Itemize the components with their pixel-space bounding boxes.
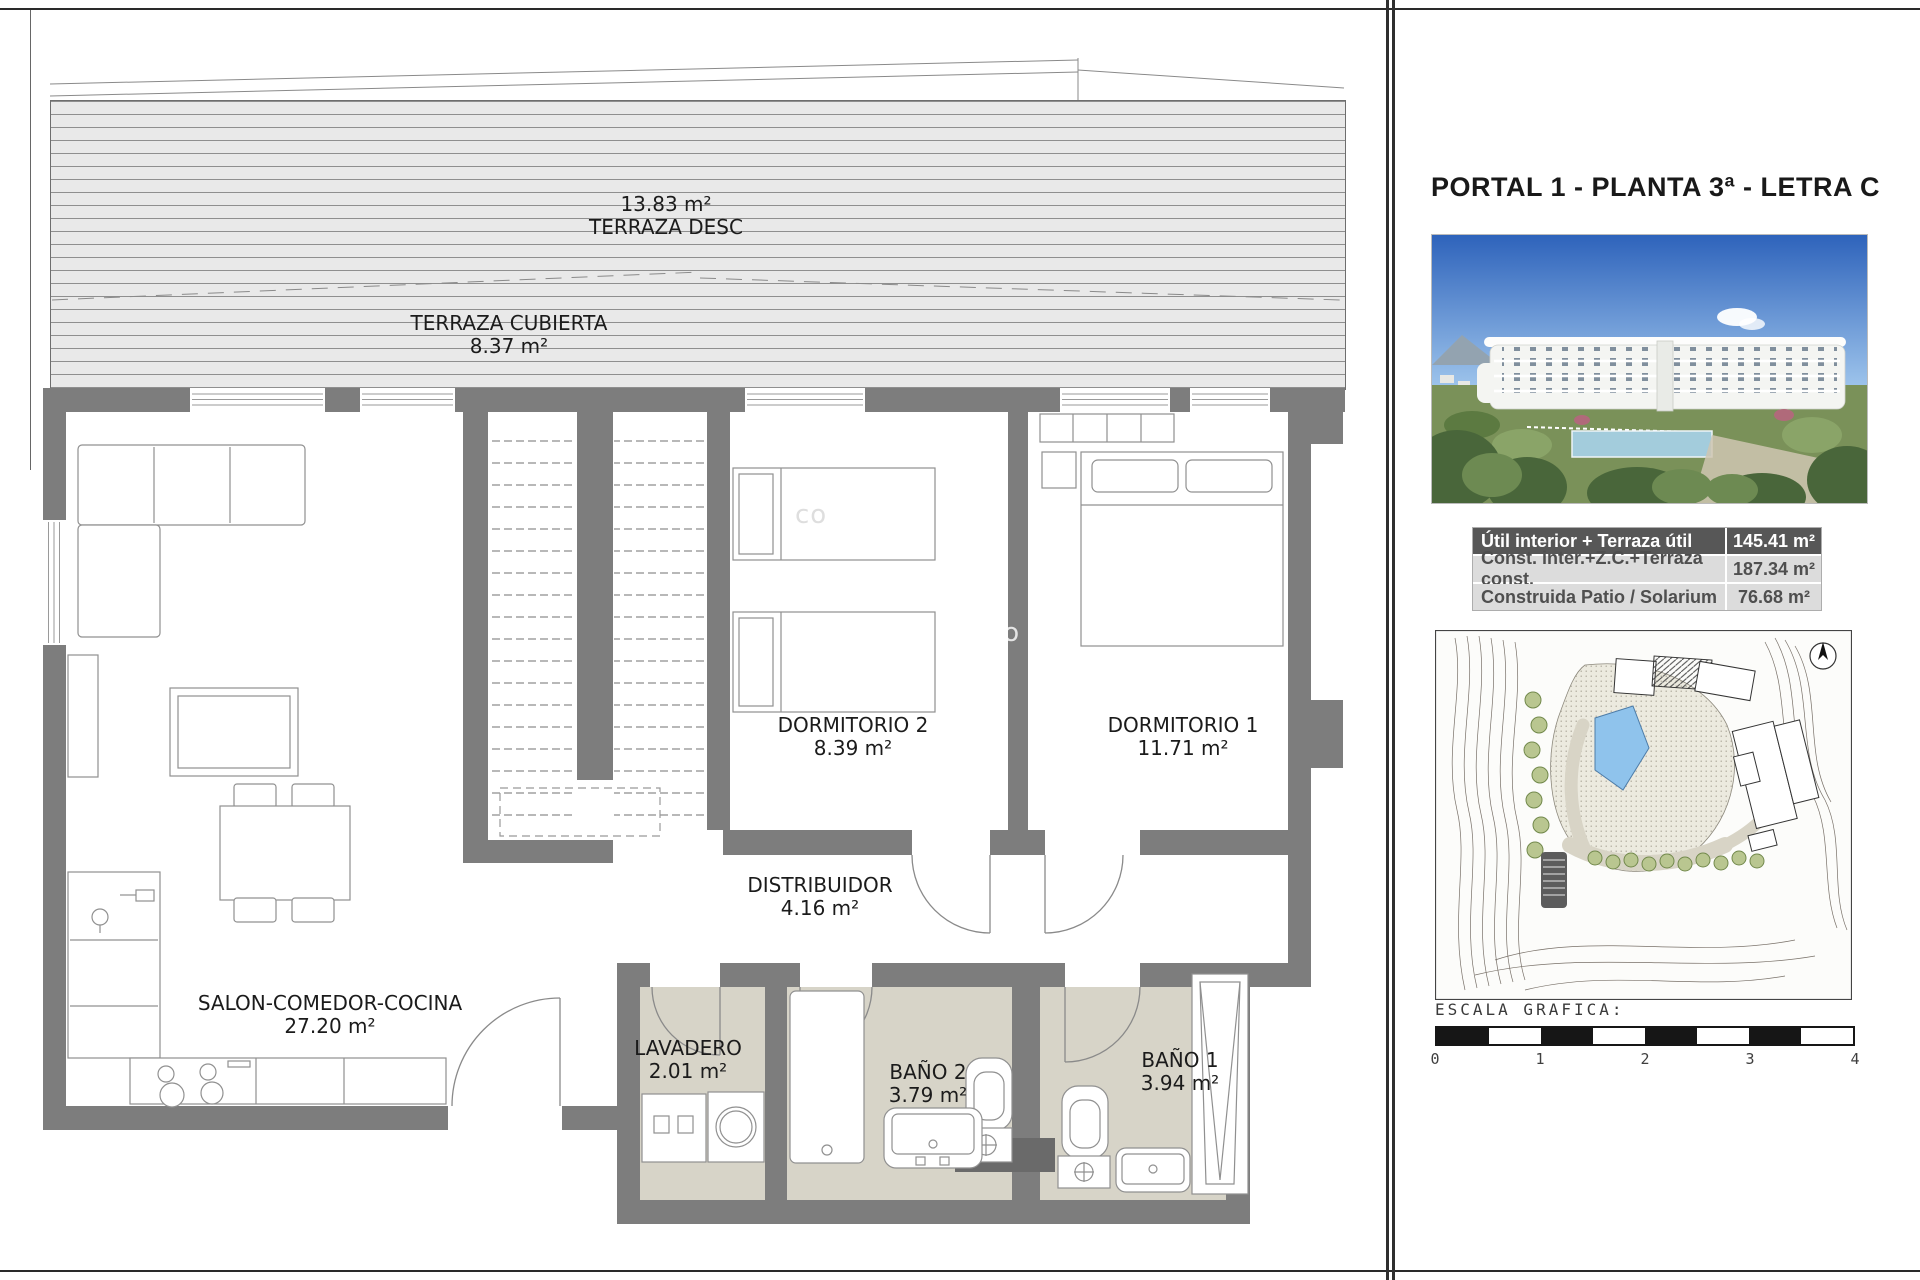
building-photo <box>1431 234 1868 504</box>
scale-label: ESCALA GRAFICA: <box>1435 1000 1625 1019</box>
label-salon: SALON-COMEDOR-COCINA 27.20 m² <box>198 992 462 1038</box>
scale-tick: 1 <box>1535 1050 1544 1068</box>
lavadero-sink-cabinet <box>642 1094 706 1162</box>
areas-table: Útil interior + Terraza útil 145.41 m² C… <box>1472 527 1822 611</box>
panel-divider-line-inner <box>1392 0 1395 1280</box>
label-lavadero: LAVADERO 2.01 m² <box>634 1037 742 1083</box>
watermark-fragment: to <box>992 618 1020 648</box>
label-terraza-desc: 13.83 m² TERRAZA DESC <box>589 193 743 239</box>
label-dormitorio-2: DORMITORIO 2 8.39 m² <box>778 714 929 760</box>
dormitorio1-furniture <box>1040 414 1283 646</box>
label-bano-1: BAÑO 1 3.94 m² <box>1141 1049 1219 1095</box>
north-arrow-icon <box>1810 642 1836 669</box>
scale-tick: 4 <box>1850 1050 1859 1068</box>
table-row-value: 187.34 m² <box>1727 556 1821 582</box>
label-distribuidor: DISTRIBUIDOR 4.16 m² <box>747 874 892 920</box>
floorplan-sheet: 13.83 m² TERRAZA DESC TERRAZA CUBIERTA 8… <box>0 0 1920 1280</box>
table-row-value: 76.68 m² <box>1727 584 1821 610</box>
shower-tray <box>790 991 864 1163</box>
graphic-scale-bar <box>1435 1026 1855 1046</box>
table-row: Construida Patio / Solarium 76.68 m² <box>1473 584 1821 610</box>
dormitorio2-furniture <box>733 468 935 712</box>
label-dormitorio-1: DORMITORIO 1 11.71 m² <box>1108 714 1259 760</box>
site-plan-map <box>1435 630 1852 1000</box>
staircase <box>490 428 704 836</box>
floor-plan: 13.83 m² TERRAZA DESC TERRAZA CUBIERTA 8… <box>0 0 1388 1280</box>
table-row: Const. inter.+Z.C.+Terraza const. 187.34… <box>1473 556 1821 582</box>
scale-tick: 0 <box>1430 1050 1439 1068</box>
scale-tick: 3 <box>1745 1050 1754 1068</box>
pool <box>1572 431 1712 457</box>
table-row-label: Construida Patio / Solarium <box>1473 584 1725 610</box>
parking-on-map <box>1541 852 1567 908</box>
table-row-label: Const. inter.+Z.C.+Terraza const. <box>1473 556 1725 582</box>
page-title: PORTAL 1 - PLANTA 3ª - LETRA C <box>1431 172 1866 203</box>
label-bano-2: BAÑO 2 3.79 m² <box>889 1061 967 1107</box>
terrace-edge-lines <box>50 58 1344 300</box>
watermark-fragment: co <box>795 500 827 530</box>
table-row-value: 145.41 m² <box>1727 528 1821 554</box>
label-terraza-cubierta: TERRAZA CUBIERTA 8.37 m² <box>411 312 608 358</box>
scale-tick: 2 <box>1640 1050 1649 1068</box>
